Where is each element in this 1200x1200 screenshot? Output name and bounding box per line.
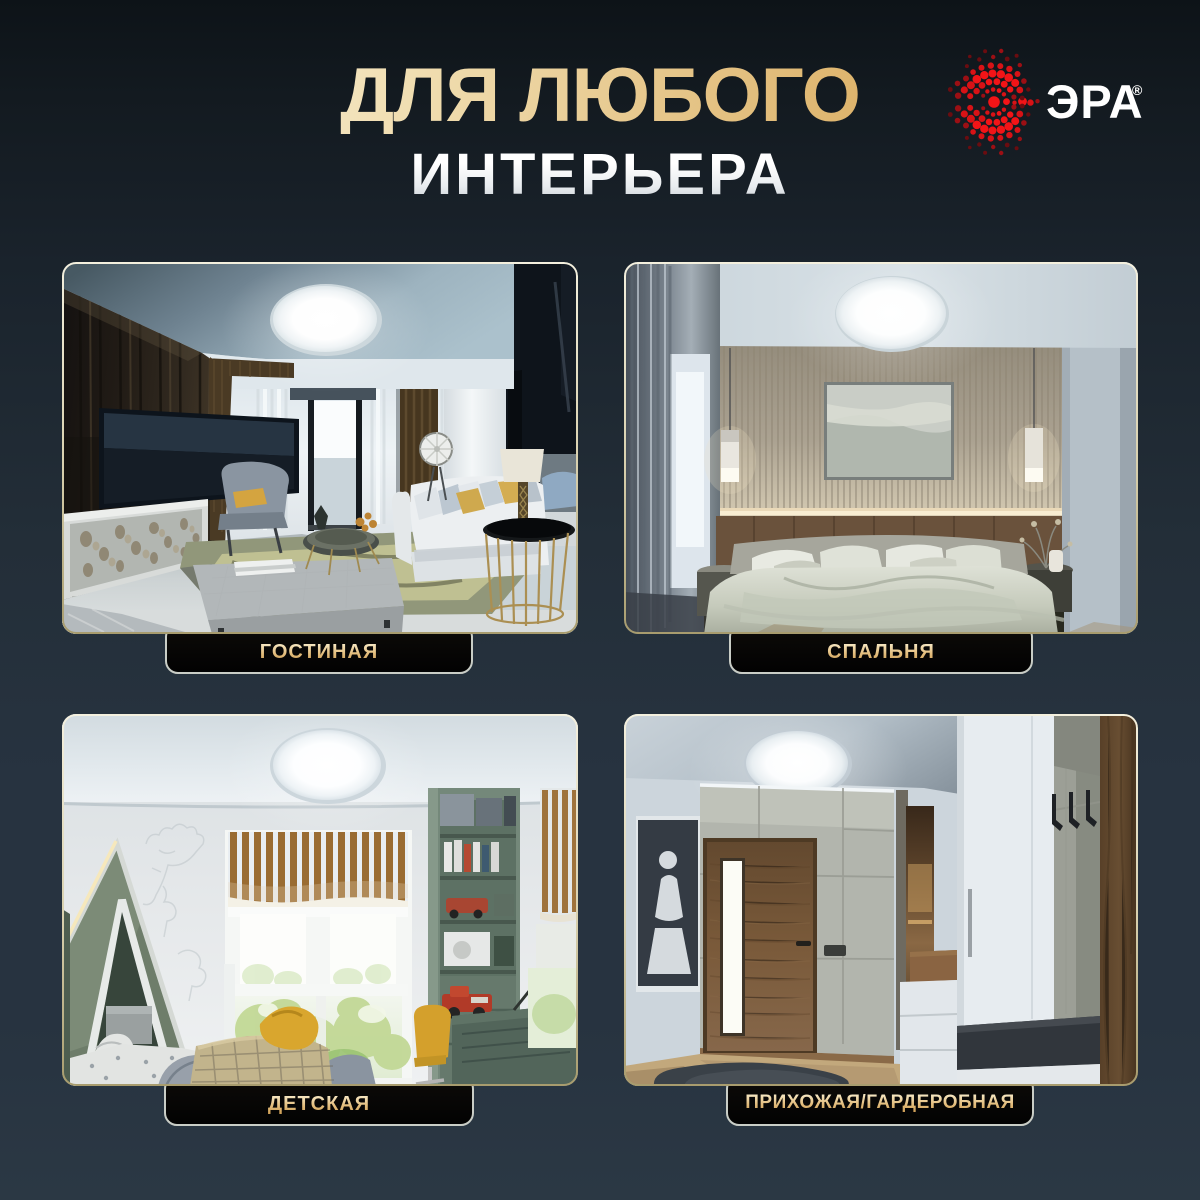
svg-text:®: ®: [1132, 82, 1143, 98]
svg-text:ЭРА: ЭРА: [1046, 75, 1144, 128]
